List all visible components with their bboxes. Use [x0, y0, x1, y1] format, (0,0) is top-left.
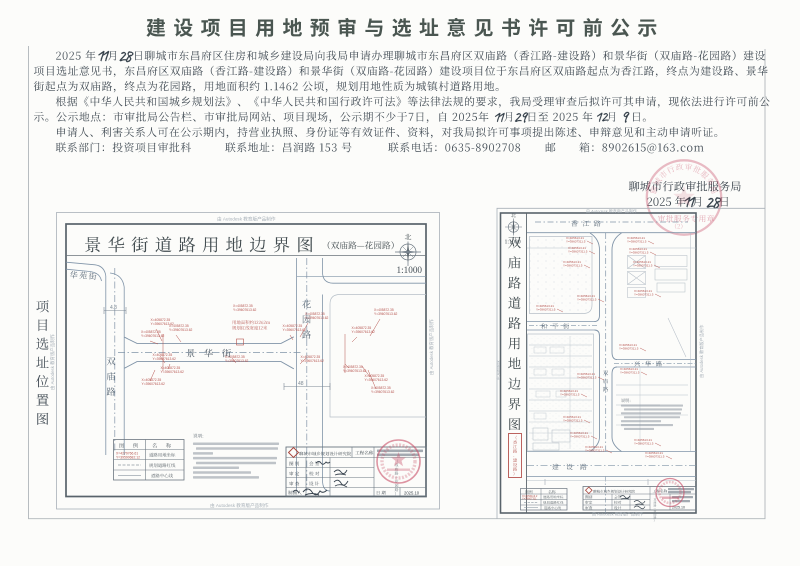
svg-text:由 Autodesk 教育版产品制作: 由 Autodesk 教育版产品制作 [210, 502, 269, 509]
svg-text:X=405613.21Y=39607311.5: X=405613.21Y=39607311.5 [620, 367, 640, 374]
svg-text:由 Autodesk 教育版产品制作: 由 Autodesk 教育版产品制作 [49, 334, 56, 390]
svg-text:X=405872.35Y=39607613.62: X=405872.35Y=39607613.62 [161, 366, 185, 374]
svg-text:X=405613.21Y=39607311.5: X=405613.21Y=39607311.5 [563, 415, 583, 422]
svg-text:X=405872.35Y=39607613.62: X=405872.35Y=39607613.62 [142, 378, 166, 386]
svg-text:X=405613.21Y=39607311.5: X=405613.21Y=39607311.5 [634, 289, 654, 296]
svg-text:由 Autodesk 教育版产品制作: 由 Autodesk 教育版产品制作 [592, 511, 643, 517]
svg-text:X=405872.35Y=39607613.62: X=405872.35Y=39607613.62 [305, 312, 329, 320]
svg-text:X=405872.35Y=39607613.62: X=405872.35Y=39607613.62 [225, 355, 249, 363]
svg-text:X=405613.21Y=39607311.5: X=405613.21Y=39607311.5 [629, 247, 649, 254]
svg-text:Y=39590682.12: Y=39590682.12 [116, 455, 140, 459]
svg-text:X=405613.21Y=39607311.5: X=405613.21Y=39607311.5 [563, 260, 583, 267]
svg-text:由 Autodesk 教育版产品制作: 由 Autodesk 教育版产品制作 [698, 324, 705, 378]
svg-text:X=405613.21Y=39607311.5: X=405613.21Y=39607311.5 [645, 451, 665, 458]
svg-text:由 Autodesk: 由 Autodesk [496, 360, 501, 380]
svg-text:由 Autodesk 教育版产品制作: 由 Autodesk 教育版产品制作 [586, 207, 637, 213]
svg-text:X=405613.21Y=39607311.5: X=405613.21Y=39607311.5 [634, 438, 654, 445]
svg-text:由 Autodesk 教育版产品制作: 由 Autodesk 教育版产品制作 [217, 216, 276, 223]
svg-text:4.8: 4.8 [110, 305, 117, 311]
svg-text:X=405872.35Y=39607613.62: X=405872.35Y=39607613.62 [233, 304, 257, 312]
svg-text:X=405872.35Y=39607613.62: X=405872.35Y=39607613.62 [352, 326, 376, 334]
svg-text:X=405613.21Y=39607311.5: X=405613.21Y=39607311.5 [536, 304, 556, 311]
svg-text:X=405613.21Y=39607311.5: X=405613.21Y=39607311.5 [577, 294, 597, 301]
svg-text:X=405613.21Y=39607311.5: X=405613.21Y=39607311.5 [585, 445, 605, 452]
svg-text:X=405872.35Y=39607613.62: X=405872.35Y=39607613.62 [153, 353, 177, 361]
svg-text:X=405872.35Y=39607613.62: X=405872.35Y=39607613.62 [374, 308, 398, 316]
svg-text:X=405613.21Y=39607311.5: X=405613.21Y=39607311.5 [568, 246, 588, 253]
svg-text:Y=39607311: Y=39607311 [522, 496, 537, 500]
svg-text:X=405872.35Y=39607613.62: X=405872.35Y=39607613.62 [141, 330, 165, 338]
svg-text:X=405613.21Y=39607311.5: X=405613.21Y=39607311.5 [619, 343, 639, 350]
svg-text:2025.10: 2025.10 [404, 491, 420, 496]
svg-text:X=405872.35Y=39607613.62: X=405872.35Y=39607613.62 [301, 355, 325, 363]
svg-text:48: 48 [298, 381, 304, 387]
svg-text:1:1000: 1:1000 [397, 265, 423, 275]
svg-text:X=405613.21Y=39607311.5: X=405613.21Y=39607311.5 [566, 236, 586, 243]
svg-text:X=405872.35Y=39607613.62: X=405872.35Y=39607613.62 [169, 324, 193, 332]
svg-text:X=405872.35Y=39607613.62: X=405872.35Y=39607613.62 [371, 386, 395, 394]
svg-text:X=405613.21Y=39607311.5: X=405613.21Y=39607311.5 [633, 260, 653, 267]
svg-text:X=405872.35Y=39607613.62: X=405872.35Y=39607613.62 [343, 365, 367, 373]
svg-text:X=405613.21Y=39607311.5: X=405613.21Y=39607311.5 [560, 389, 580, 396]
svg-text:由 Autodesk 教育版产品制作: 由 Autodesk 教育版产品制作 [428, 319, 435, 375]
svg-text:X=405613.21Y=39607311.5: X=405613.21Y=39607311.5 [627, 236, 647, 243]
svg-text:X=405613.21Y=39607311.5: X=405613.21Y=39607311.5 [577, 372, 597, 379]
svg-text:X=405613.21Y=39607311.5: X=405613.21Y=39607311.5 [570, 431, 590, 438]
svg-text:X=405872.35Y=39607613.62: X=405872.35Y=39607613.62 [283, 324, 307, 332]
svg-text:X=405872.35Y=39607613.62: X=405872.35Y=39607613.62 [365, 374, 389, 382]
